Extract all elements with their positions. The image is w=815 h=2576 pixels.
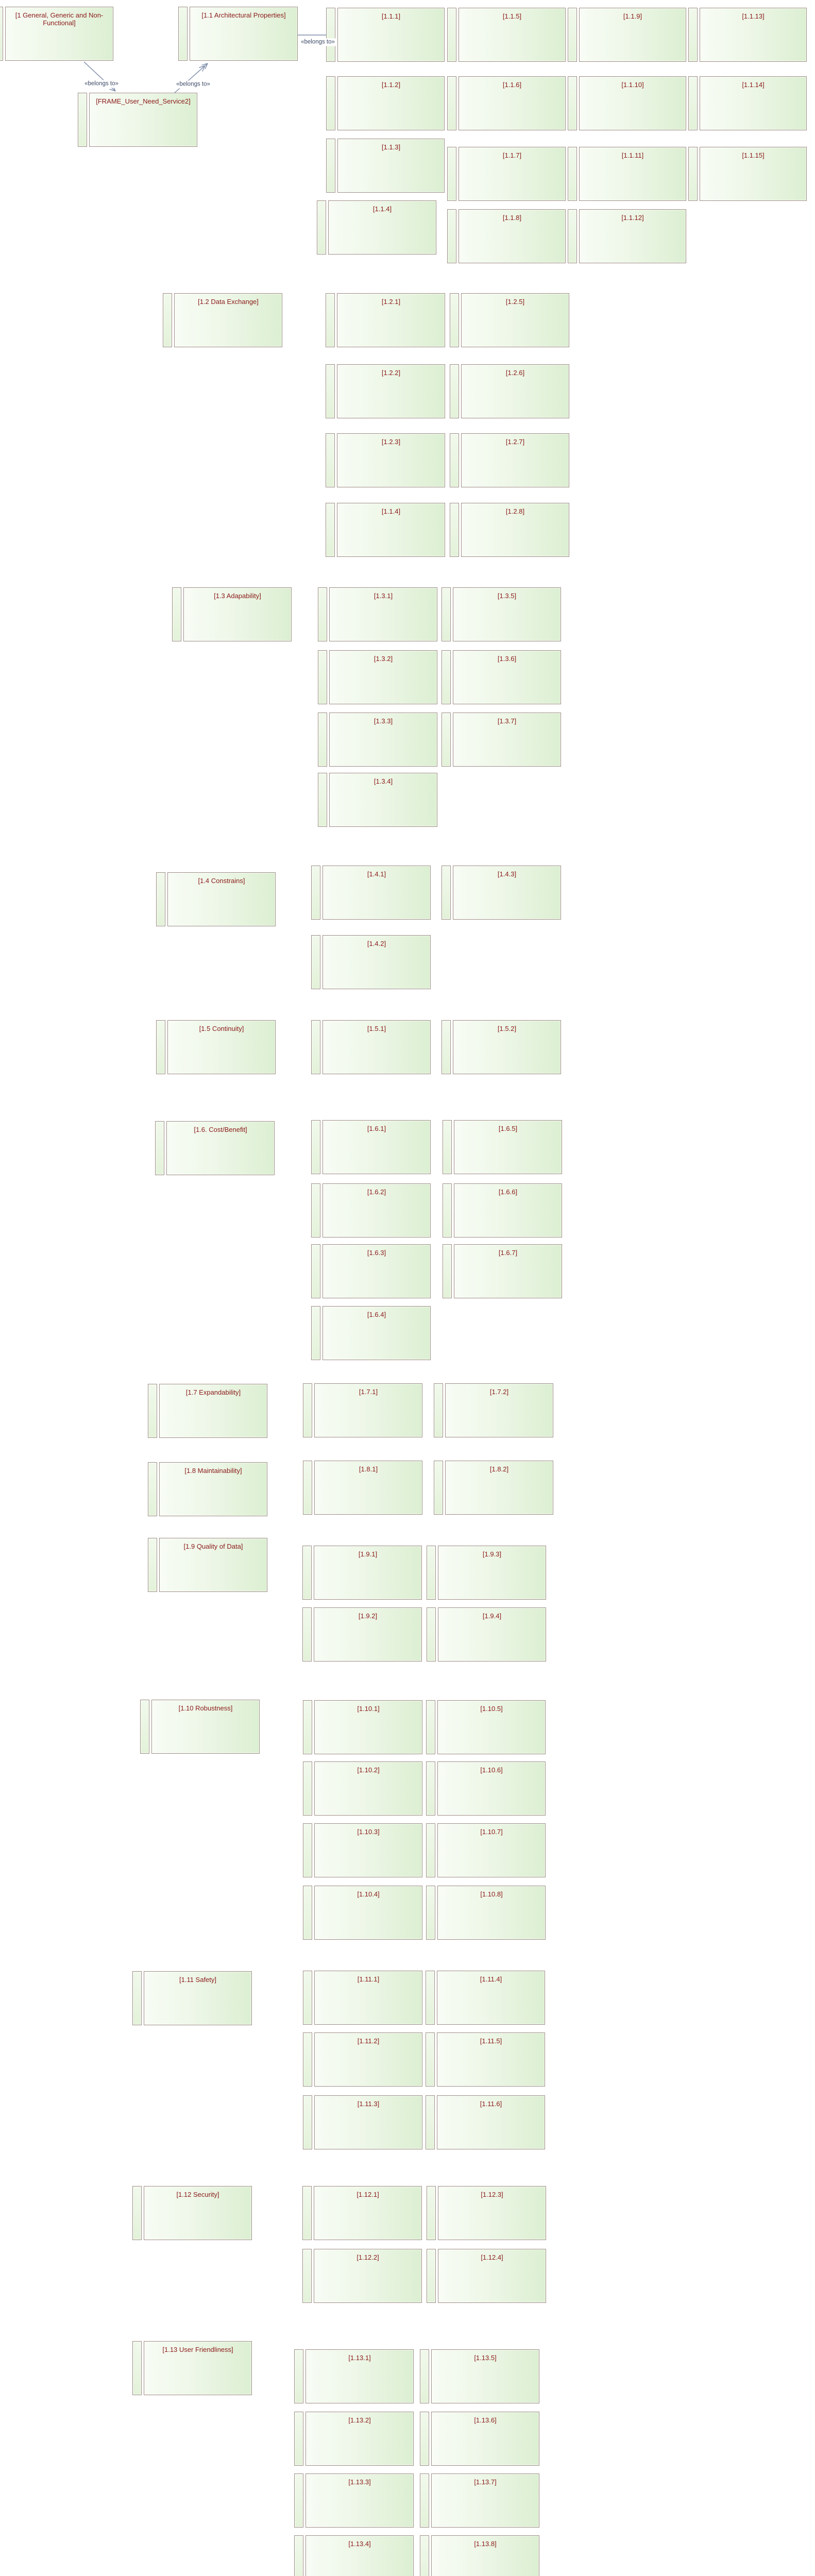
- node-body: [1.10 Robustness]: [151, 1700, 260, 1754]
- node-body: [1.10.6]: [437, 1761, 546, 1816]
- node-label: [FRAME_User_Need_Service2]: [93, 93, 194, 105]
- node-1-10-7[interactable]: [1.10.7]: [426, 1823, 546, 1877]
- node-strip: [317, 200, 326, 255]
- node-label: [1.6.5]: [496, 1121, 520, 1132]
- node-body: [1.6.7]: [454, 1244, 562, 1298]
- node-label: [1.9.1]: [355, 1546, 380, 1558]
- node-strip: [426, 1761, 435, 1816]
- node-label: [1.6.7]: [496, 1245, 520, 1257]
- node-1-12-1[interactable]: [1.12.1]: [302, 2186, 422, 2240]
- node-body: [1.10.5]: [437, 1700, 546, 1754]
- node-1-10[interactable]: [1.10 Robustness]: [140, 1700, 260, 1754]
- node-1-9-2[interactable]: [1.9.2]: [302, 1607, 422, 1662]
- node-body: [1.10.2]: [314, 1761, 422, 1816]
- node-strip: [443, 1183, 452, 1238]
- node-label: [1.1.3]: [379, 139, 403, 151]
- node-1-13-8[interactable]: [1.13.8]: [420, 2535, 539, 2576]
- node-body: [1.3.6]: [453, 650, 561, 704]
- node-body: [1.3.4]: [329, 773, 437, 827]
- node-1-3-3[interactable]: [1.3.3]: [318, 713, 437, 767]
- node-label: [1.3.2]: [371, 651, 396, 663]
- node-strip: [426, 2095, 435, 2149]
- node-1-12[interactable]: [1.12 Security]: [132, 2186, 252, 2240]
- node-1-11[interactable]: [1.11 Safety]: [132, 1971, 252, 2025]
- node-strip: [326, 364, 335, 418]
- node-label: [1.10.3]: [354, 1824, 382, 1836]
- node-strip: [311, 866, 320, 920]
- node-body: [1.1.6]: [459, 76, 566, 130]
- node-label: [1.12.3]: [478, 2187, 506, 2198]
- node-label: [1.2.3]: [379, 434, 403, 446]
- node-strip: [443, 1120, 452, 1174]
- node-1-6-2[interactable]: [1.6.2]: [311, 1183, 431, 1238]
- node-1-12-3[interactable]: [1.12.3]: [427, 2186, 546, 2240]
- node-1-5-2[interactable]: [1.5.2]: [442, 1020, 561, 1074]
- node-body: [1.13 User Friendliness]: [144, 2341, 252, 2395]
- node-label: [1.8.1]: [356, 1461, 381, 1473]
- node-1-6[interactable]: [1.6. Cost/Benefit]: [155, 1121, 275, 1175]
- node-body: [1.8.1]: [314, 1461, 422, 1515]
- node-strip: [303, 1700, 312, 1754]
- node-strip: [156, 1020, 165, 1074]
- node-1-1-12[interactable]: [1.1.12]: [568, 209, 686, 263]
- node-strip: [302, 2186, 312, 2240]
- node-1-1-9[interactable]: [1.1.9]: [568, 8, 686, 62]
- edge-label-belongs-to: «belongs to»: [299, 39, 336, 46]
- node-1-6-3[interactable]: [1.6.3]: [311, 1244, 431, 1298]
- node-1-1-13[interactable]: [1.1.13]: [688, 8, 807, 62]
- node-label: [1.5 Continuity]: [196, 1021, 247, 1032]
- node-label: [1.7.1]: [356, 1384, 381, 1396]
- node-strip: [302, 1546, 312, 1600]
- node-label: [1.3.5]: [495, 588, 519, 600]
- node-strip: [303, 1971, 312, 2025]
- node-label: [1.9 Quality of Data]: [181, 1538, 246, 1550]
- node-1-1-7[interactable]: [1.1.7]: [447, 147, 566, 201]
- node-label: [1.6.1]: [364, 1121, 389, 1132]
- node-1[interactable]: [1 General, Generic and Non-Functional]: [0, 7, 113, 61]
- node-1-2-6[interactable]: [1.2.6]: [450, 364, 569, 418]
- node-label: [1.10.2]: [354, 1762, 382, 1774]
- node-1-13-5[interactable]: [1.13.5]: [420, 2349, 539, 2403]
- node-body: [1.13.5]: [431, 2349, 539, 2403]
- node-label: [1.1.2]: [379, 77, 403, 89]
- node-1-13[interactable]: [1.13 User Friendliness]: [132, 2341, 252, 2395]
- node-1-12-2[interactable]: [1.12.2]: [302, 2249, 422, 2303]
- node-body: [1.1.9]: [579, 8, 686, 62]
- node-strip: [303, 2032, 312, 2087]
- node-1-1-8[interactable]: [1.1.8]: [447, 209, 566, 263]
- node-strip: [156, 872, 165, 926]
- node-body: [1.1.2]: [337, 76, 445, 130]
- node-1-13-3[interactable]: [1.13.3]: [294, 2473, 414, 2528]
- node-body: [1.6.3]: [322, 1244, 431, 1298]
- node-1-8[interactable]: [1.8 Maintainability]: [148, 1462, 267, 1516]
- node-body: [1.6.2]: [322, 1183, 431, 1238]
- node-strip: [434, 1383, 443, 1437]
- node-1-3-4[interactable]: [1.3.4]: [318, 773, 437, 827]
- node-label: [1.12.4]: [478, 2249, 506, 2261]
- node-label: [1.2.8]: [503, 503, 528, 515]
- node-body: [1.12.1]: [314, 2186, 422, 2240]
- node-1-4[interactable]: [1.4 Constrains]: [156, 872, 276, 926]
- node-strip: [311, 1244, 320, 1298]
- node-label: [1.6.2]: [364, 1184, 389, 1196]
- node-strip: [426, 1971, 435, 2025]
- node-strip: [148, 1538, 157, 1592]
- node-strip: [568, 209, 577, 263]
- node-strip: [132, 2341, 142, 2395]
- node-body: [1.9.2]: [314, 1607, 422, 1662]
- node-label: [1.11.6]: [477, 2096, 505, 2108]
- node-strip: [318, 773, 327, 827]
- node-strip: [426, 1886, 435, 1940]
- node-1-5[interactable]: [1.5 Continuity]: [156, 1020, 276, 1074]
- node-label: [1.2.5]: [503, 294, 528, 306]
- node-body: [1.5.2]: [453, 1020, 561, 1074]
- node-1-10-8[interactable]: [1.10.8]: [426, 1886, 546, 1940]
- node-strip: [442, 866, 451, 920]
- node-body: [1.12.2]: [314, 2249, 422, 2303]
- node-1-1-6[interactable]: [1.1.6]: [447, 76, 566, 130]
- node-1-7-2[interactable]: [1.7.2]: [434, 1383, 553, 1437]
- node-label: [1.11.2]: [354, 2033, 382, 2045]
- node-body: [1.2.3]: [337, 433, 445, 487]
- node-strip: [172, 587, 181, 641]
- node-strip: [0, 7, 3, 61]
- node-1-9-1[interactable]: [1.9.1]: [302, 1546, 422, 1600]
- node-label: [1.1.4]: [379, 503, 403, 515]
- node-body: [1.4.2]: [322, 935, 431, 989]
- node-1-2-3[interactable]: [1.2.3]: [326, 433, 445, 487]
- node-body: [1.11.4]: [437, 1971, 545, 2025]
- node-1-10-6[interactable]: [1.10.6]: [426, 1761, 546, 1816]
- node-strip: [442, 713, 451, 767]
- node-1-10-2[interactable]: [1.10.2]: [303, 1761, 422, 1816]
- node-1-2-2[interactable]: [1.2.2]: [326, 364, 445, 418]
- node-label: [1.1.15]: [739, 147, 767, 159]
- node-label: [1.13.2]: [345, 2412, 373, 2424]
- node-body: [1.3.7]: [453, 713, 561, 767]
- node-1-12-4[interactable]: [1.12.4]: [427, 2249, 546, 2303]
- node-1-7-1[interactable]: [1.7.1]: [303, 1383, 422, 1437]
- node-1-11-5[interactable]: [1.11.5]: [426, 2032, 545, 2087]
- node-1-2-5[interactable]: [1.2.5]: [450, 293, 569, 347]
- node-1-1-3[interactable]: [1.1.3]: [326, 139, 445, 193]
- node-1-3-2[interactable]: [1.3.2]: [318, 650, 437, 704]
- diagram-canvas: [1 General, Generic and Non-Functional][…: [0, 0, 815, 2576]
- node-label: [1.13.4]: [345, 2536, 373, 2548]
- node-strip: [294, 2412, 303, 2466]
- node-body: [1.11 Safety]: [144, 1971, 252, 2025]
- node-body: [1.2.2]: [337, 364, 445, 418]
- node-strip: [426, 2032, 435, 2087]
- node-label: [1.10.6]: [477, 1762, 505, 1774]
- node-body: [1.13.1]: [305, 2349, 414, 2403]
- node-1-4-3[interactable]: [1.4.3]: [442, 866, 561, 920]
- node-1-10-5[interactable]: [1.10.5]: [426, 1700, 546, 1754]
- node-label: [1.12.2]: [353, 2249, 382, 2261]
- node-1-3-1[interactable]: [1.3.1]: [318, 587, 437, 641]
- node-body: [1.13.3]: [305, 2473, 414, 2528]
- node-strip: [326, 8, 335, 62]
- node-body: [1.10.4]: [314, 1886, 422, 1940]
- node-strip: [568, 76, 577, 130]
- node-body: [1.1.4]: [328, 200, 436, 255]
- node-body: [1.13.8]: [431, 2535, 539, 2576]
- node-body: [1.6.6]: [454, 1183, 562, 1238]
- node-1-13-4[interactable]: [1.13.4]: [294, 2535, 414, 2576]
- node-1-7[interactable]: [1.7 Expandability]: [148, 1384, 267, 1438]
- node-label: [1.10.1]: [354, 1701, 382, 1713]
- node-body: [1.3.2]: [329, 650, 437, 704]
- node-label: [1.10.7]: [477, 1824, 505, 1836]
- node-label: [1.3.7]: [495, 713, 519, 725]
- node-1-6-4[interactable]: [1.6.4]: [311, 1306, 431, 1360]
- node-frame[interactable]: [FRAME_User_Need_Service2]: [78, 93, 197, 147]
- node-strip: [434, 1461, 443, 1515]
- node-body: [1.4 Constrains]: [167, 872, 276, 926]
- node-body: [1.5 Continuity]: [167, 1020, 276, 1074]
- node-body: [1.6.5]: [454, 1120, 562, 1174]
- node-strip: [303, 1761, 312, 1816]
- node-1-13-6[interactable]: [1.13.6]: [420, 2412, 539, 2466]
- node-body: [1.2.6]: [461, 364, 569, 418]
- node-1-10-3[interactable]: [1.10.3]: [303, 1823, 422, 1877]
- node-body: [1.9.3]: [438, 1546, 546, 1600]
- node-label: [1.1.9]: [620, 8, 645, 20]
- node-label: [1.5.2]: [495, 1021, 519, 1032]
- node-strip: [420, 2473, 429, 2528]
- node-body: [1.3.5]: [453, 587, 561, 641]
- node-1-3-6[interactable]: [1.3.6]: [442, 650, 561, 704]
- node-strip: [688, 76, 698, 130]
- node-strip: [303, 1886, 312, 1940]
- node-label: [1.10.4]: [354, 1886, 382, 1898]
- node-label: [1.4.2]: [364, 936, 389, 947]
- node-body: [1.9 Quality of Data]: [159, 1538, 267, 1592]
- node-1-3-5[interactable]: [1.3.5]: [442, 587, 561, 641]
- node-label: [1.3.3]: [371, 713, 396, 725]
- node-1-2-7[interactable]: [1.2.7]: [450, 433, 569, 487]
- node-body: [1.1.11]: [579, 147, 686, 201]
- node-strip: [155, 1121, 164, 1175]
- node-strip: [568, 8, 577, 62]
- node-1-1-5[interactable]: [1.1.5]: [447, 8, 566, 62]
- node-label: [1.8.2]: [487, 1461, 512, 1473]
- node-body: [1.2.1]: [337, 293, 445, 347]
- node-1-9[interactable]: [1.9 Quality of Data]: [148, 1538, 267, 1592]
- node-1-13-2[interactable]: [1.13.2]: [294, 2412, 414, 2466]
- node-1-11-4[interactable]: [1.11.4]: [426, 1971, 545, 2025]
- node-body: [1.6.4]: [322, 1306, 431, 1360]
- node-strip: [318, 713, 327, 767]
- node-label: [1.7 Expandability]: [183, 1384, 244, 1396]
- node-label: [1.1.6]: [500, 77, 524, 89]
- node-label: [1 General, Generic and Non-Functional]: [6, 7, 113, 27]
- node-label: [1.6. Cost/Benefit]: [191, 1122, 250, 1133]
- node-label: [1.7.2]: [487, 1384, 512, 1396]
- node-strip: [450, 433, 459, 487]
- node-body: [1.1.13]: [700, 8, 807, 62]
- node-1-4-2[interactable]: [1.4.2]: [311, 935, 431, 989]
- node-body: [1.7.1]: [314, 1383, 422, 1437]
- node-label: [1.2.2]: [379, 365, 403, 377]
- node-body: [1.12.3]: [438, 2186, 546, 2240]
- node-1-9-4[interactable]: [1.9.4]: [427, 1607, 546, 1662]
- node-body: [1.1.12]: [579, 209, 686, 263]
- node-label: [1.10.8]: [477, 1886, 505, 1898]
- node-strip: [427, 1546, 436, 1600]
- node-body: [1.2.7]: [461, 433, 569, 487]
- node-strip: [427, 2186, 436, 2240]
- node-body: [1.1 Architectural Properties]: [190, 7, 298, 61]
- node-body: [1.12 Security]: [144, 2186, 252, 2240]
- node-label: [1.5.1]: [364, 1021, 389, 1032]
- node-body: [1.6.1]: [322, 1120, 431, 1174]
- node-1-1-4[interactable]: [1.1.4]: [317, 200, 436, 255]
- node-body: [1.1.10]: [579, 76, 686, 130]
- node-strip: [132, 2186, 142, 2240]
- node-label: [1.11.3]: [354, 2096, 382, 2108]
- node-label: [1.9.4]: [480, 1608, 504, 1620]
- node-strip: [140, 1700, 149, 1754]
- node-label: [1.3.1]: [371, 588, 396, 600]
- node-1-6-6[interactable]: [1.6.6]: [443, 1183, 562, 1238]
- node-body: [1.2.8]: [461, 503, 569, 557]
- node-strip: [443, 1244, 452, 1298]
- node-label: [1.11.4]: [477, 1971, 505, 1983]
- node-label: [1.13.5]: [471, 2350, 499, 2362]
- node-1-9-3[interactable]: [1.9.3]: [427, 1546, 546, 1600]
- node-1-2[interactable]: [1.2 Data Exchange]: [163, 293, 282, 347]
- node-strip: [326, 76, 335, 130]
- node-strip: [447, 209, 456, 263]
- node-1-2-8[interactable]: [1.2.8]: [450, 503, 569, 557]
- node-label: [1.6.6]: [496, 1184, 520, 1196]
- node-1-11-2[interactable]: [1.11.2]: [303, 2032, 422, 2087]
- node-1-11-1[interactable]: [1.11.1]: [303, 1971, 422, 2025]
- node-1-11-3[interactable]: [1.11.3]: [303, 2095, 422, 2149]
- node-1-6-1[interactable]: [1.6.1]: [311, 1120, 431, 1174]
- node-label: [1.9.3]: [480, 1546, 504, 1558]
- node-strip: [294, 2535, 303, 2576]
- node-label: [1.13.8]: [471, 2536, 499, 2548]
- node-1-1-2[interactable]: [1.1.2]: [326, 76, 445, 130]
- node-1-8-1[interactable]: [1.8.1]: [303, 1461, 422, 1515]
- node-1-11-6[interactable]: [1.11.6]: [426, 2095, 545, 2149]
- node-label: [1.1.1]: [379, 8, 403, 20]
- node-label: [1.10.5]: [477, 1701, 505, 1713]
- node-label: [1.3 Adapability]: [211, 588, 264, 600]
- node-body: [1.1.15]: [700, 147, 807, 201]
- node-strip: [163, 293, 172, 347]
- node-1-10-1[interactable]: [1.10.1]: [303, 1700, 422, 1754]
- node-1-1-4-dup[interactable]: [1.1.4]: [326, 503, 445, 557]
- node-label: [1.2.1]: [379, 294, 403, 306]
- node-label: [1.4.1]: [364, 866, 389, 878]
- node-1-1-15[interactable]: [1.1.15]: [688, 147, 807, 201]
- node-strip: [326, 503, 335, 557]
- node-1-13-1[interactable]: [1.13.1]: [294, 2349, 414, 2403]
- node-1-4-1[interactable]: [1.4.1]: [311, 866, 431, 920]
- node-strip: [326, 139, 335, 193]
- node-strip: [688, 8, 698, 62]
- node-body: [1.10.7]: [437, 1823, 546, 1877]
- node-label: [1.13 User Friendliness]: [159, 2342, 236, 2353]
- node-1-1-11[interactable]: [1.1.11]: [568, 147, 686, 201]
- edge-label-belongs-to: «belongs to»: [175, 81, 212, 89]
- node-label: [1.13.7]: [471, 2474, 499, 2486]
- node-body: [FRAME_User_Need_Service2]: [89, 93, 197, 147]
- node-1-1-1[interactable]: [1.1.1]: [326, 8, 445, 62]
- node-strip: [688, 147, 698, 201]
- node-1-5-1[interactable]: [1.5.1]: [311, 1020, 431, 1074]
- node-1-3-7[interactable]: [1.3.7]: [442, 713, 561, 767]
- node-1-3[interactable]: [1.3 Adapability]: [172, 587, 292, 641]
- node-strip: [420, 2535, 429, 2576]
- node-strip: [427, 2249, 436, 2303]
- node-strip: [326, 433, 335, 487]
- node-strip: [442, 1020, 451, 1074]
- node-label: [1.12 Security]: [173, 2187, 222, 2198]
- node-1-1-10[interactable]: [1.1.10]: [568, 76, 686, 130]
- node-label: [1.11 Safety]: [176, 1972, 219, 1984]
- node-body: [1.1.14]: [700, 76, 807, 130]
- node-strip: [420, 2412, 429, 2466]
- node-body: [1.8 Maintainability]: [159, 1462, 267, 1516]
- node-strip: [148, 1384, 157, 1438]
- node-strip: [450, 364, 459, 418]
- edge-label-belongs-to: «belongs to»: [83, 80, 120, 88]
- node-strip: [311, 1020, 320, 1074]
- node-label: [1.4 Constrains]: [195, 873, 248, 885]
- node-label: [1.13.3]: [345, 2474, 373, 2486]
- node-label: [1.1.4]: [370, 201, 395, 213]
- node-1-6-7[interactable]: [1.6.7]: [443, 1244, 562, 1298]
- node-label: [1.2.6]: [503, 365, 528, 377]
- node-label: [1.3.4]: [371, 773, 396, 785]
- node-body: [1.10.8]: [437, 1886, 546, 1940]
- node-body: [1.6. Cost/Benefit]: [166, 1121, 275, 1175]
- node-body: [1.11.6]: [437, 2095, 545, 2149]
- node-1-6-5[interactable]: [1.6.5]: [443, 1120, 562, 1174]
- node-body: [1.7.2]: [445, 1383, 553, 1437]
- node-strip: [303, 2095, 312, 2149]
- node-label: [1.10 Robustness]: [176, 1700, 236, 1712]
- node-1-1[interactable]: [1.1 Architectural Properties]: [178, 7, 298, 61]
- node-body: [1.9.4]: [438, 1607, 546, 1662]
- node-label: [1.1.11]: [619, 147, 647, 159]
- node-strip: [318, 650, 327, 704]
- node-strip: [447, 76, 456, 130]
- node-strip: [294, 2473, 303, 2528]
- node-body: [1.5.1]: [322, 1020, 431, 1074]
- node-1-13-7[interactable]: [1.13.7]: [420, 2473, 539, 2528]
- node-strip: [311, 1120, 320, 1174]
- node-label: [1.1 Architectural Properties]: [198, 7, 288, 19]
- node-body: [1.13.2]: [305, 2412, 414, 2466]
- node-body: [1.3.3]: [329, 713, 437, 767]
- node-1-1-14[interactable]: [1.1.14]: [688, 76, 807, 130]
- node-label: [1.13.6]: [471, 2412, 499, 2424]
- node-strip: [447, 8, 456, 62]
- node-1-10-4[interactable]: [1.10.4]: [303, 1886, 422, 1940]
- node-strip: [148, 1462, 157, 1516]
- node-1-8-2[interactable]: [1.8.2]: [434, 1461, 553, 1515]
- node-1-2-1[interactable]: [1.2.1]: [326, 293, 445, 347]
- node-body: [1.11.3]: [314, 2095, 422, 2149]
